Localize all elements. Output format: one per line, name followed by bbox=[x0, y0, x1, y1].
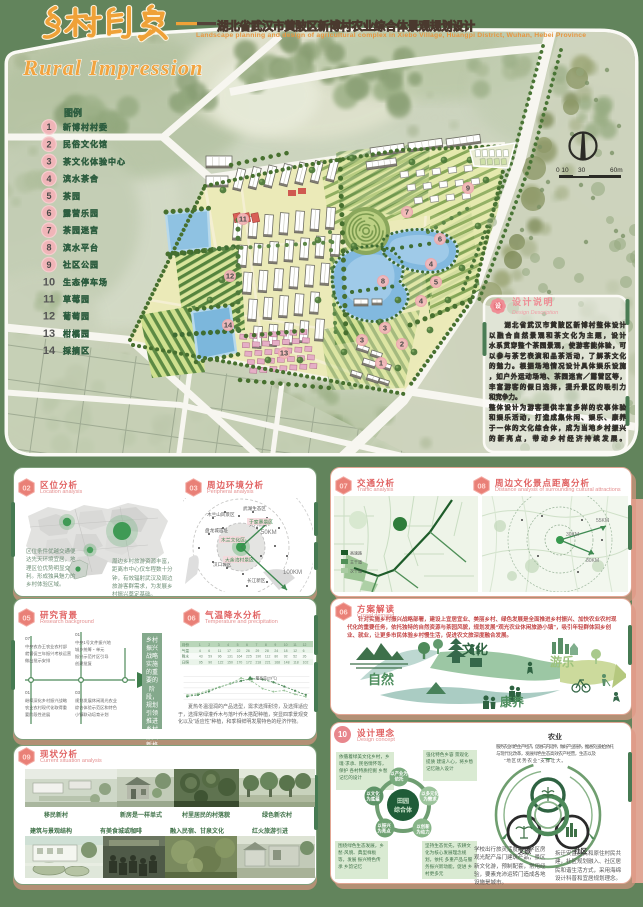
svg-text:3: 3 bbox=[360, 336, 364, 345]
svg-text:创建批复: 创建批复 bbox=[75, 660, 93, 667]
svg-text:最高温(29℃): 最高温(29℃) bbox=[255, 675, 277, 680]
svg-text:茶园: 茶园 bbox=[62, 191, 81, 201]
svg-text:为亮点: 为亮点 bbox=[377, 828, 391, 835]
svg-text:0 10: 0 10 bbox=[556, 167, 569, 174]
svg-text:08: 08 bbox=[477, 481, 485, 490]
svg-text:图例: 图例 bbox=[64, 107, 82, 118]
svg-text:12: 12 bbox=[293, 649, 297, 653]
svg-text:11: 11 bbox=[239, 215, 247, 224]
svg-text:59: 59 bbox=[208, 655, 212, 659]
svg-text:Rural Impression: Rural Impression bbox=[22, 55, 204, 80]
svg-text:木兰文化区: 木兰文化区 bbox=[221, 536, 245, 543]
svg-text:2: 2 bbox=[208, 643, 210, 647]
svg-text:05: 05 bbox=[22, 613, 30, 622]
svg-text:190: 190 bbox=[255, 655, 261, 659]
svg-text:07: 07 bbox=[339, 481, 347, 490]
svg-text:43: 43 bbox=[199, 655, 203, 659]
svg-text:7: 7 bbox=[405, 208, 409, 217]
svg-text:06: 06 bbox=[187, 613, 195, 622]
svg-text:03: 03 bbox=[75, 690, 81, 695]
svg-text:06: 06 bbox=[339, 607, 347, 616]
svg-text:降水: 降水 bbox=[182, 654, 190, 659]
svg-text:5: 5 bbox=[434, 278, 438, 287]
svg-text:172: 172 bbox=[246, 660, 252, 664]
svg-text:8: 8 bbox=[381, 277, 385, 286]
svg-text:4: 4 bbox=[199, 649, 201, 653]
svg-text:11: 11 bbox=[218, 649, 222, 653]
svg-text:做出批示安排: 做出批示安排 bbox=[25, 657, 51, 664]
svg-text:农业农村现代化取得重: 农业农村现代化取得重 bbox=[25, 704, 67, 711]
svg-text:60m: 60m bbox=[610, 167, 623, 174]
svg-text:221: 221 bbox=[265, 660, 271, 664]
svg-text:6: 6 bbox=[303, 649, 305, 653]
svg-text:与现代化改革，发展绿色生态高效农产经营，生态以及: 与现代化改革，发展绿色生态高效农产经营，生态以及 bbox=[496, 750, 596, 757]
svg-text:自然: 自然 bbox=[368, 672, 394, 687]
svg-text:1: 1 bbox=[46, 122, 51, 132]
svg-text:26: 26 bbox=[246, 649, 250, 653]
svg-text:设: 设 bbox=[495, 302, 501, 310]
svg-text:18: 18 bbox=[284, 649, 288, 653]
svg-text:3: 3 bbox=[383, 324, 387, 333]
svg-text:中央农办王农业农村部: 中央农办王农业农村部 bbox=[25, 643, 67, 650]
svg-text:Design Description: Design Description bbox=[512, 310, 558, 316]
svg-text:大余湾村景区: 大余湾村景区 bbox=[225, 556, 254, 563]
svg-text:11: 11 bbox=[43, 294, 55, 306]
svg-text:丰富游客的假日选择，提升景区的吸引力: 丰富游客的假日选择，提升景区的吸引力 bbox=[489, 382, 627, 391]
svg-text:12: 12 bbox=[43, 311, 55, 323]
svg-text:气温: 气温 bbox=[182, 648, 190, 653]
svg-text:的魅力。根据场地情况设计具体娱乐设施: 的魅力。根据场地情况设计具体娱乐设施 bbox=[489, 361, 627, 370]
svg-text:11: 11 bbox=[293, 643, 297, 647]
svg-text:城乡统筹・单元: 城乡统筹・单元 bbox=[75, 646, 104, 653]
svg-text:游乐: 游乐 bbox=[550, 654, 574, 669]
svg-text:6: 6 bbox=[438, 235, 442, 244]
svg-text:03: 03 bbox=[189, 483, 197, 492]
svg-text:8: 8 bbox=[265, 643, 267, 647]
svg-text:高速路: 高速路 bbox=[350, 550, 362, 556]
svg-text:52: 52 bbox=[293, 655, 297, 659]
svg-text:168: 168 bbox=[274, 660, 280, 664]
svg-text:92: 92 bbox=[284, 655, 288, 659]
svg-text:中央1号文件振兴地: 中央1号文件振兴地 bbox=[75, 639, 112, 646]
svg-text:要阶段性进展: 要阶段性进展 bbox=[25, 711, 51, 718]
svg-text:为需求: 为需求 bbox=[423, 796, 437, 803]
svg-text:02: 02 bbox=[22, 483, 30, 492]
svg-text:社区公园: 社区公园 bbox=[62, 260, 99, 270]
svg-text:225: 225 bbox=[246, 655, 252, 659]
svg-text:1: 1 bbox=[199, 643, 201, 647]
svg-text:滨水茶舍: 滨水茶舍 bbox=[63, 174, 99, 184]
svg-text:80: 80 bbox=[274, 655, 278, 659]
svg-text:12: 12 bbox=[226, 272, 234, 281]
svg-text:50KM: 50KM bbox=[261, 530, 277, 536]
svg-text:田园: 田园 bbox=[397, 797, 409, 805]
svg-text:综合体验示范区和特色: 综合体验示范区和特色 bbox=[75, 704, 118, 711]
svg-text:次干道: 次干道 bbox=[350, 568, 362, 574]
svg-text:24: 24 bbox=[274, 649, 278, 653]
svg-text:6: 6 bbox=[246, 643, 248, 647]
svg-text:1: 1 bbox=[379, 359, 383, 368]
svg-text:26: 26 bbox=[303, 655, 307, 659]
svg-text:振兴示范片区引导: 振兴示范片区引导 bbox=[75, 653, 109, 660]
svg-text:118: 118 bbox=[293, 660, 299, 664]
svg-text:和竞争力。: 和竞争力。 bbox=[488, 392, 522, 401]
svg-text:122: 122 bbox=[218, 660, 224, 664]
svg-text:综合体: 综合体 bbox=[394, 806, 413, 814]
svg-text:13: 13 bbox=[280, 349, 288, 358]
svg-text:100KM: 100KM bbox=[283, 570, 302, 576]
svg-text:7: 7 bbox=[255, 643, 257, 647]
svg-text:生态停车场: 生态停车场 bbox=[63, 277, 108, 287]
svg-text:以参与茶艺表演和品茶活动，了解茶文化: 以参与茶艺表演和品茶活动，了解茶文化 bbox=[489, 351, 627, 360]
svg-text:葡萄园: 葡萄园 bbox=[62, 311, 90, 321]
svg-text:採摘区: 採摘区 bbox=[63, 346, 90, 356]
svg-text:和娱乐活动，打造成集休闲、娱乐、康养: 和娱乐活动，打造成集休闲、娱乐、康养 bbox=[488, 413, 627, 422]
svg-text:主干道: 主干道 bbox=[350, 559, 362, 565]
svg-text:草莓园: 草莓园 bbox=[63, 294, 90, 304]
svg-text:2: 2 bbox=[46, 139, 51, 149]
svg-text:就督促三年振兴考核运营: 就督促三年振兴考核运营 bbox=[25, 650, 71, 657]
svg-text:29: 29 bbox=[255, 649, 259, 653]
svg-text:10: 10 bbox=[284, 643, 288, 647]
svg-text:95: 95 bbox=[199, 660, 203, 664]
svg-text:武湖生态区: 武湖生态区 bbox=[243, 505, 266, 512]
svg-text:22: 22 bbox=[237, 649, 241, 653]
svg-text:5: 5 bbox=[237, 643, 239, 647]
svg-text:14: 14 bbox=[224, 321, 233, 330]
svg-text:4: 4 bbox=[227, 643, 229, 647]
svg-text:Landscape planning and design: Landscape planning and design of agricul… bbox=[196, 32, 586, 39]
svg-text:，如户外运动场地、茶园迷宫／露营区等，: ，如户外运动场地、茶园迷宫／露营区等， bbox=[489, 372, 626, 381]
svg-text:整体设计为游客提供丰富多样的农事体验: 整体设计为游客提供丰富多样的农事体验 bbox=[489, 402, 627, 411]
svg-text:长江新区: 长江新区 bbox=[247, 577, 266, 584]
svg-text:07: 07 bbox=[25, 636, 31, 641]
svg-text:小镇联动培育计划: 小镇联动培育计划 bbox=[75, 711, 109, 718]
svg-text:150: 150 bbox=[227, 660, 233, 664]
svg-text:木兰山风景区: 木兰山风景区 bbox=[207, 511, 235, 518]
svg-text:滨水平台: 滨水平台 bbox=[63, 242, 99, 252]
svg-text:28: 28 bbox=[265, 649, 269, 653]
svg-text:湖北省武汉市黄陂区新博村农业综合体景观规划设计: 湖北省武汉市黄陂区新博村农业综合体景观规划设计 bbox=[217, 19, 476, 33]
svg-text:17: 17 bbox=[227, 649, 231, 653]
svg-text:01: 01 bbox=[75, 632, 81, 637]
svg-text:6: 6 bbox=[46, 208, 51, 218]
svg-text:3: 3 bbox=[218, 643, 220, 647]
svg-text:继续深化乡村振兴战略: 继续深化乡村振兴战略 bbox=[25, 697, 68, 704]
svg-text:01: 01 bbox=[25, 690, 31, 695]
svg-text:09: 09 bbox=[22, 752, 30, 761]
svg-text:茶园迷宫: 茶园迷宫 bbox=[62, 225, 99, 235]
svg-text:3: 3 bbox=[46, 157, 51, 167]
svg-text:为底蕴: 为底蕴 bbox=[366, 796, 380, 803]
svg-text:5: 5 bbox=[46, 191, 51, 201]
svg-text:“地区优势农业”支撑壮大。: “地区优势农业”支撑壮大。 bbox=[504, 757, 566, 764]
svg-text:112: 112 bbox=[265, 655, 271, 659]
svg-text:为动力: 为动力 bbox=[416, 829, 430, 836]
svg-text:13: 13 bbox=[43, 328, 55, 340]
svg-text:盘龙城遗址: 盘龙城遗址 bbox=[205, 527, 228, 534]
svg-text:湖北省武汉市黄陂区新博村整体设计: 湖北省武汉市黄陂区新博村整体设计 bbox=[489, 320, 627, 329]
svg-text:218: 218 bbox=[255, 660, 261, 664]
svg-text:30: 30 bbox=[578, 167, 586, 174]
svg-text:于一体的文化综合体，成为当地乡村振兴: 于一体的文化综合体，成为当地乡村振兴 bbox=[489, 423, 627, 432]
svg-text:以融合自然景观和茶文化为主题，设计: 以融合自然景观和茶文化为主题，设计 bbox=[489, 330, 627, 339]
svg-text:月份: 月份 bbox=[182, 642, 190, 647]
svg-text:规划发展休闲观光农业: 规划发展休闲观光农业 bbox=[75, 697, 117, 704]
svg-text:新博村村委: 新博村村委 bbox=[63, 122, 108, 132]
svg-text:茶文化体验中心: 茶文化体验中心 bbox=[62, 156, 126, 166]
svg-text:12: 12 bbox=[303, 643, 307, 647]
svg-text:9: 9 bbox=[466, 184, 470, 193]
svg-text:7: 7 bbox=[46, 225, 51, 235]
svg-text:90: 90 bbox=[208, 660, 212, 664]
svg-text:96: 96 bbox=[218, 655, 222, 659]
svg-text:55KM: 55KM bbox=[596, 518, 609, 524]
svg-text:6: 6 bbox=[208, 649, 210, 653]
svg-text:露营乐园: 露营乐园 bbox=[63, 208, 99, 218]
svg-text:9: 9 bbox=[274, 643, 276, 647]
svg-text:14: 14 bbox=[43, 345, 56, 357]
svg-text:农业: 农业 bbox=[547, 732, 562, 741]
svg-text:102: 102 bbox=[303, 660, 309, 664]
svg-text:柑橘园: 柑橘园 bbox=[63, 328, 90, 338]
svg-text:康养: 康养 bbox=[500, 694, 524, 709]
svg-text:8: 8 bbox=[46, 243, 51, 253]
svg-text:170: 170 bbox=[237, 660, 243, 664]
svg-text:日照: 日照 bbox=[182, 659, 190, 664]
svg-text:10: 10 bbox=[43, 276, 55, 288]
svg-text:民俗文化馆: 民俗文化馆 bbox=[63, 139, 108, 149]
svg-text:80KM: 80KM bbox=[586, 558, 599, 564]
svg-text:水系贯穿整个茶园景观，使游客能体验，可: 水系贯穿整个茶园景观，使游客能体验，可 bbox=[489, 341, 627, 350]
svg-text:4: 4 bbox=[46, 174, 51, 184]
svg-text:依托: 依托 bbox=[395, 776, 404, 783]
svg-text:于家寨景区: 于家寨景区 bbox=[249, 518, 273, 525]
svg-text:设计说明: 设计说明 bbox=[512, 296, 554, 307]
svg-text:2: 2 bbox=[400, 340, 404, 349]
svg-text:服务农业绿色生产经济，促进向内延伸，做好产业链条，推进农业融: 服务农业绿色生产经济，促进向内延伸，做好产业链条，推进农业融合依托 bbox=[496, 743, 614, 750]
svg-text:9: 9 bbox=[46, 260, 51, 270]
svg-text:164: 164 bbox=[237, 655, 243, 659]
svg-text:30KM: 30KM bbox=[566, 532, 579, 538]
svg-text:文化: 文化 bbox=[462, 642, 488, 657]
svg-text:148: 148 bbox=[284, 660, 290, 664]
svg-text:131: 131 bbox=[227, 655, 233, 659]
